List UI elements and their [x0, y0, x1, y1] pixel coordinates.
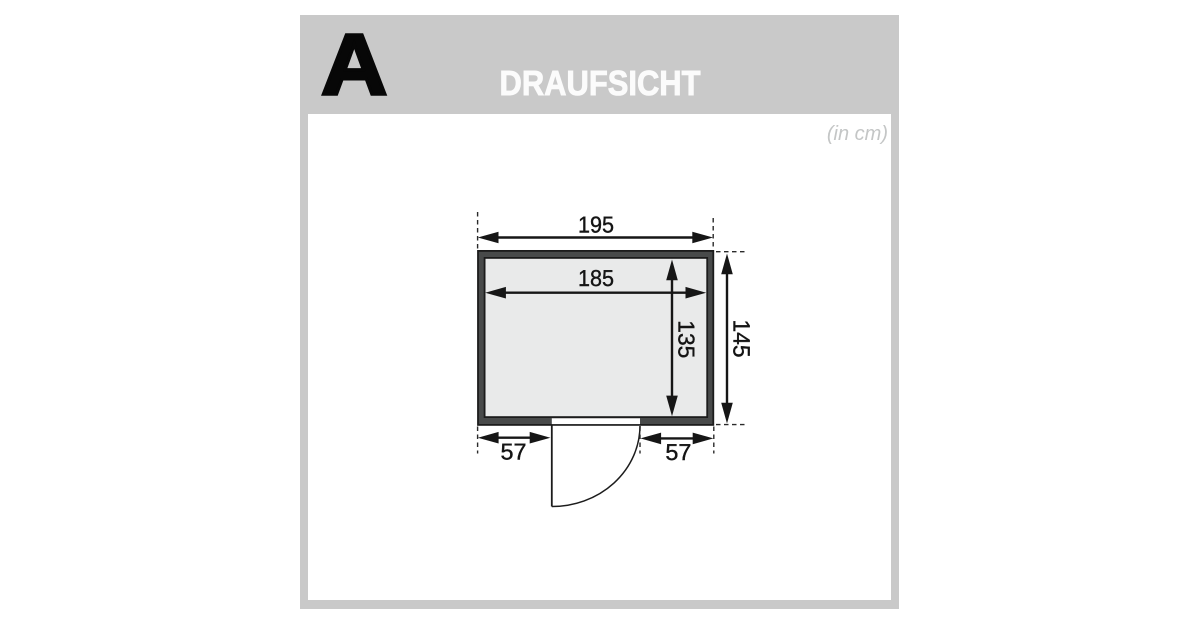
- svg-text:135: 135: [674, 320, 700, 358]
- svg-text:195: 195: [578, 211, 614, 237]
- svg-text:57: 57: [665, 439, 691, 465]
- svg-text:145: 145: [728, 320, 754, 358]
- svg-text:57: 57: [501, 439, 527, 465]
- svg-text:185: 185: [578, 265, 614, 291]
